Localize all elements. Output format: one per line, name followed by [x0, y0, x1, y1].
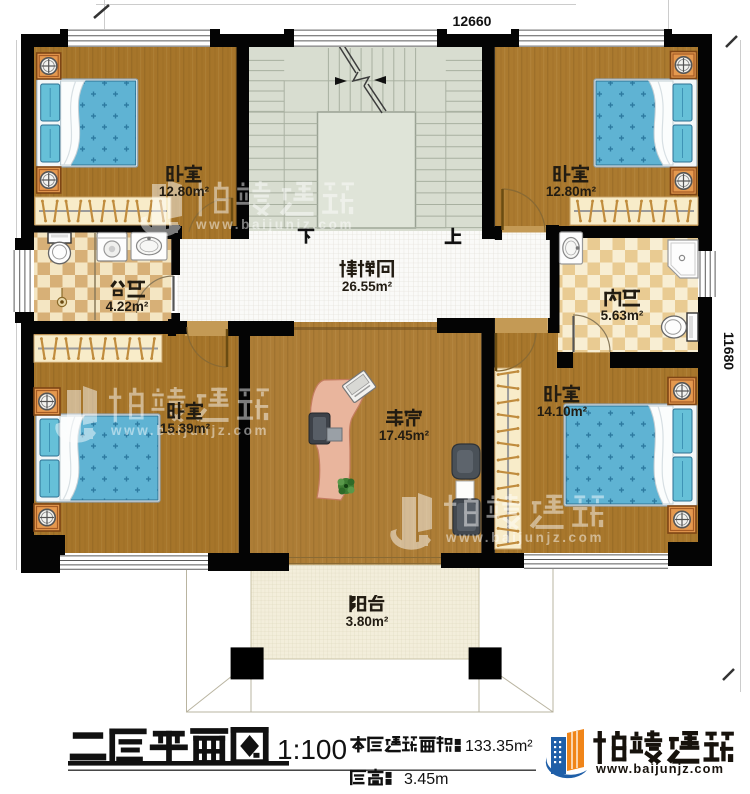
svg-text:1:100: 1:100	[277, 734, 347, 765]
svg-text:www.baijunjz.com: www.baijunjz.com	[595, 761, 724, 776]
svg-text:11680: 11680	[721, 332, 737, 370]
svg-text:15.39m²: 15.39m²	[160, 421, 211, 436]
svg-text:3.80m²: 3.80m²	[346, 614, 389, 629]
svg-text:12.80m²: 12.80m²	[546, 184, 597, 199]
svg-text:14.10m²: 14.10m²	[537, 404, 588, 419]
svg-text:12.80m²: 12.80m²	[159, 184, 210, 199]
svg-text:133.35m²: 133.35m²	[465, 738, 533, 755]
svg-text:4.22m²: 4.22m²	[106, 299, 149, 314]
svg-text:3.45m: 3.45m	[404, 771, 448, 788]
svg-text:5.63m²: 5.63m²	[601, 308, 644, 323]
svg-text:12660: 12660	[453, 13, 492, 29]
svg-text:26.55m²: 26.55m²	[342, 279, 393, 294]
svg-text:17.45m²: 17.45m²	[379, 428, 430, 443]
